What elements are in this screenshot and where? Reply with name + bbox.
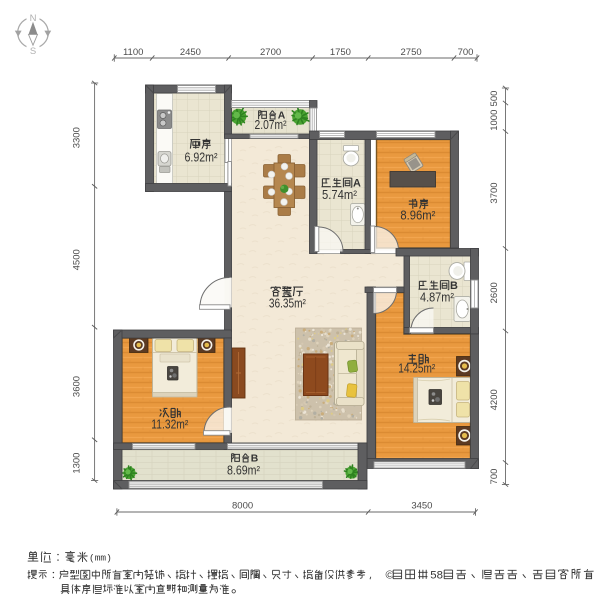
- svg-text:8.96m²: 8.96m²: [400, 207, 436, 222]
- svg-text:4200: 4200: [489, 389, 500, 410]
- svg-text:S: S: [30, 46, 36, 57]
- svg-text:2.07m²: 2.07m²: [255, 117, 287, 132]
- svg-text:5.74m²: 5.74m²: [322, 187, 358, 202]
- svg-text:3450: 3450: [411, 501, 432, 512]
- svg-text:(mm): (mm): [89, 553, 112, 564]
- svg-text:2600: 2600: [489, 282, 500, 303]
- svg-text:4.87m²: 4.87m²: [420, 290, 455, 305]
- svg-text:700: 700: [458, 47, 474, 58]
- svg-text:14.25m²: 14.25m²: [398, 361, 435, 376]
- svg-text:6.92m²: 6.92m²: [185, 150, 218, 165]
- svg-text:58: 58: [430, 569, 443, 581]
- svg-text:2700: 2700: [260, 47, 281, 58]
- svg-text:3300: 3300: [72, 127, 83, 148]
- svg-text:700: 700: [489, 469, 500, 485]
- svg-text:1300: 1300: [72, 453, 83, 474]
- svg-text:36.35m²: 36.35m²: [269, 296, 306, 311]
- svg-text:500: 500: [489, 91, 500, 107]
- svg-text:3600: 3600: [72, 376, 83, 397]
- svg-text:N: N: [30, 13, 37, 24]
- svg-text:2450: 2450: [180, 47, 201, 58]
- svg-text:3700: 3700: [489, 182, 500, 203]
- svg-text:1100: 1100: [123, 47, 143, 58]
- svg-text:8000: 8000: [232, 501, 253, 512]
- svg-text:4500: 4500: [72, 249, 83, 270]
- svg-text:11.32m²: 11.32m²: [151, 417, 188, 432]
- svg-text:2750: 2750: [401, 47, 422, 58]
- svg-text:1000: 1000: [489, 110, 500, 131]
- svg-text:8.69m²: 8.69m²: [227, 463, 260, 478]
- svg-text:1750: 1750: [330, 47, 351, 58]
